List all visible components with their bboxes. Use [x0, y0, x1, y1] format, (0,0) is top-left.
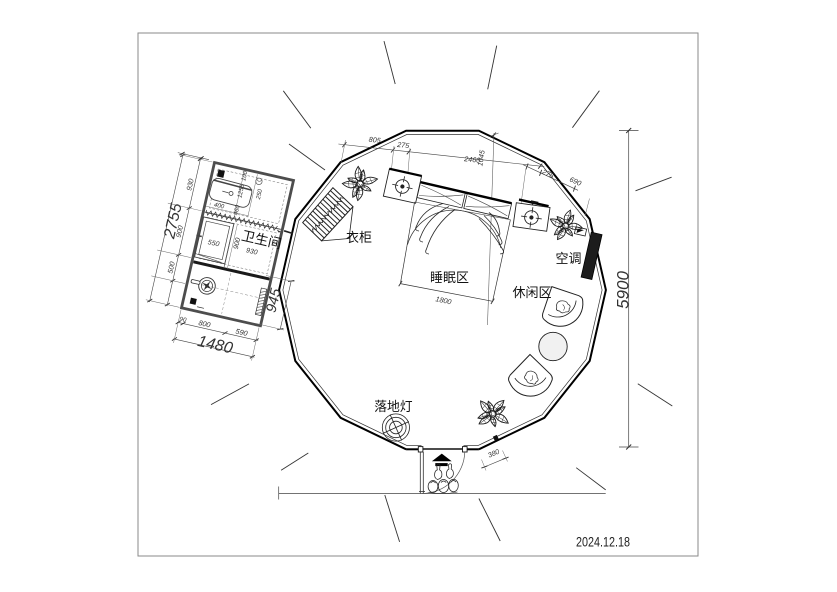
- svg-text:睡眠区: 睡眠区: [430, 270, 469, 285]
- svg-text:空调: 空调: [555, 251, 581, 266]
- svg-text:275: 275: [396, 140, 411, 150]
- svg-text:衣柜: 衣柜: [346, 230, 372, 245]
- svg-text:落地灯: 落地灯: [374, 399, 413, 414]
- svg-text:5900: 5900: [614, 271, 633, 309]
- svg-text:休闲区: 休闲区: [512, 285, 551, 300]
- svg-text:805: 805: [368, 135, 382, 145]
- svg-text:2024.12.18: 2024.12.18: [576, 534, 630, 550]
